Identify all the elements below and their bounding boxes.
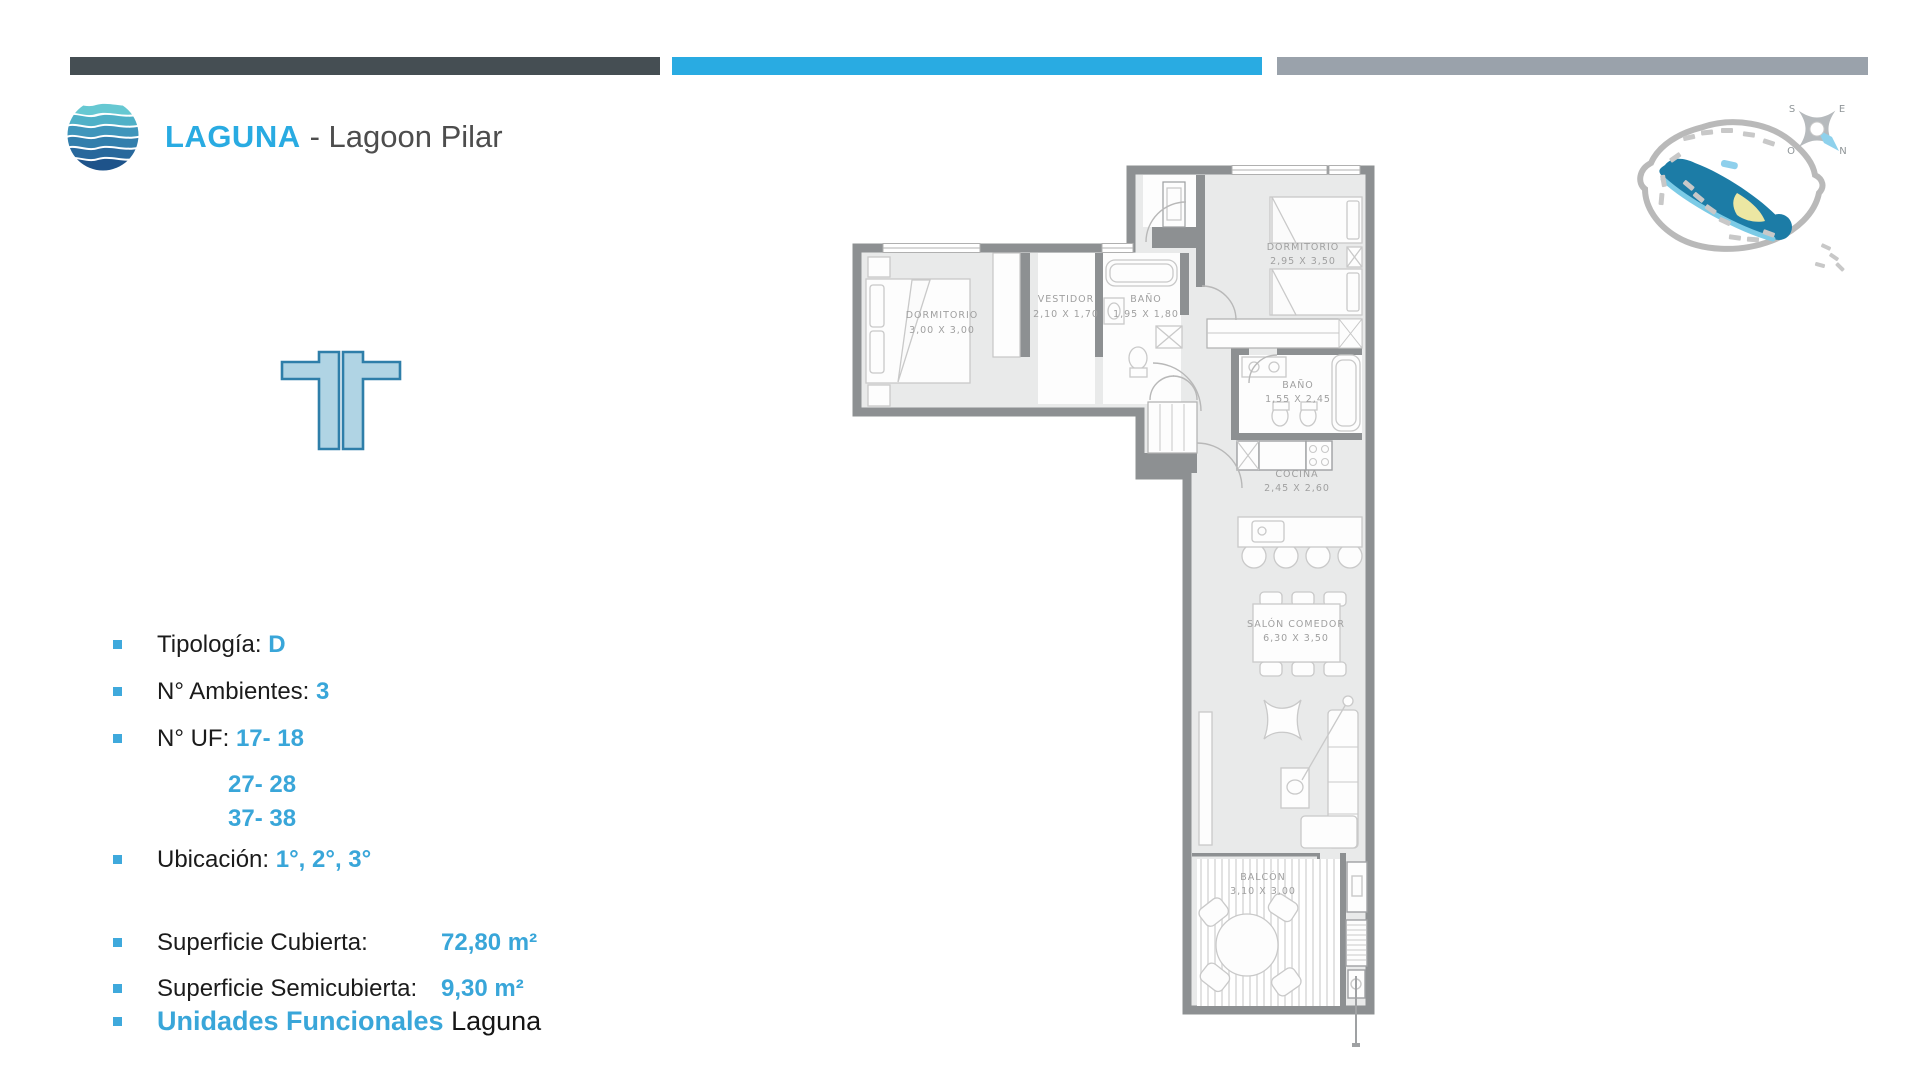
list-item-ambientes: N° Ambientes: 3: [113, 675, 753, 708]
header-bar-dark: [70, 57, 660, 75]
room-label: BAÑO: [1130, 294, 1162, 305]
bullet-icon: [113, 687, 122, 696]
bullet-icon: [113, 640, 122, 649]
room-dims: 1,55 X 2,45: [1265, 394, 1331, 405]
page-title: LAGUNA- Lagoon Pilar: [165, 119, 503, 155]
compass-label: S: [1789, 104, 1795, 115]
site-map: S E O N: [1625, 95, 1915, 290]
list-item-ubicacion: Ubicación: 1°, 2°, 3°: [113, 843, 753, 876]
bullet-icon: [113, 734, 122, 743]
room-dims: 3,00 X 3,00: [909, 325, 975, 336]
compass-label: O: [1787, 146, 1795, 157]
room-dims: 2,10 X 1,70: [1033, 309, 1099, 320]
floor-plan: DORMITORIO 3,00 X 3,00 VESTIDOR 2,10 X 1…: [850, 150, 1410, 1055]
room-dims: 2,45 X 2,60: [1264, 483, 1330, 494]
list-item-uf: N° UF: 17- 18: [113, 722, 753, 755]
room-label: DORMITORIO: [906, 310, 979, 321]
room-label: SALÓN COMEDOR: [1247, 618, 1345, 630]
list-item-superficie-semicubierta: Superficie Semicubierta: 9,30 m²: [113, 972, 753, 1005]
bullet-icon: [113, 984, 122, 993]
room-dims: 3,10 X 3,00: [1230, 886, 1296, 897]
list-item-uf-cont: 37- 38: [113, 802, 753, 835]
bullet-icon: [113, 855, 122, 864]
brochure-page: LAGUNA- Lagoon Pilar Tipología: D N° Amb…: [0, 0, 1920, 1080]
room-label: BALCÓN: [1240, 871, 1286, 883]
header-bar-accent: [672, 57, 1262, 75]
room-dims: 1,95 X 1,80: [1113, 309, 1179, 320]
brand-name: LAGUNA: [165, 119, 301, 154]
room-label: DORMITORIO: [1267, 242, 1340, 253]
spec-list: Tipología: D N° Ambientes: 3 N° UF: 17- …: [113, 628, 753, 1038]
list-item-unidades-funcionales: Unidades Funcionales Laguna: [113, 1005, 753, 1038]
laguna-waves-logo-icon: [64, 96, 142, 179]
list-item-uf-cont: 27- 28: [113, 768, 753, 801]
room-label: VESTIDOR: [1038, 294, 1095, 305]
list-item-superficie-cubierta: Superficie Cubierta: 72,80 m²: [113, 926, 753, 959]
bullet-icon: [113, 938, 122, 947]
bullet-icon: [113, 1017, 122, 1026]
project-name: - Lagoon Pilar: [310, 119, 503, 154]
header-bar-gray: [1277, 57, 1868, 75]
room-dims: 2,95 X 3,50: [1270, 256, 1336, 267]
room-dims: 6,30 X 3,50: [1263, 633, 1329, 644]
room-label: COCINA: [1275, 469, 1318, 480]
compass-label: E: [1839, 104, 1845, 115]
room-label: BAÑO: [1282, 380, 1314, 391]
list-item-tipologia: Tipología: D: [113, 628, 753, 661]
compass-label: N: [1839, 146, 1846, 157]
compass-icon: S E O N: [1780, 95, 1854, 166]
building-footprint-icon: [280, 350, 402, 457]
